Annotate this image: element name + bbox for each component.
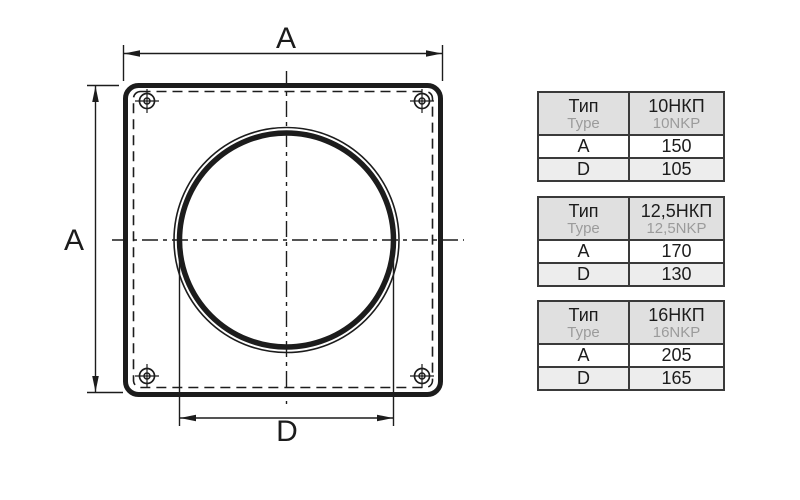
type-header-cell: 10НКП 10NKP	[629, 92, 724, 135]
param-header-cell: Тип Type	[538, 301, 629, 344]
value-cell: 170	[629, 240, 724, 263]
technical-drawing: A A D	[0, 0, 530, 500]
type-header-cell: 16НКП 16NKP	[629, 301, 724, 344]
param-cell: D	[538, 263, 629, 286]
type-label-ru: 16НКП	[630, 305, 723, 325]
dimension-label-a-left: A	[64, 224, 84, 257]
type-label-en: 12,5NKP	[630, 221, 723, 237]
table-row: A 170	[538, 240, 724, 263]
type-label-ru: 12,5НКП	[630, 201, 723, 221]
table-row: D 165	[538, 367, 724, 390]
param-label-ru: Тип	[539, 96, 628, 116]
param-header-cell: Тип Type	[538, 197, 629, 240]
type-header-cell: 12,5НКП 12,5NKP	[629, 197, 724, 240]
param-label-en: Type	[539, 221, 628, 237]
table-header-row: Тип Type 12,5НКП 12,5NKP	[538, 197, 724, 240]
param-label-ru: Тип	[539, 201, 628, 221]
value-cell: 130	[629, 263, 724, 286]
table-header-row: Тип Type 10НКП 10NKP	[538, 92, 724, 135]
param-label-en: Type	[539, 325, 628, 341]
value-cell: 105	[629, 158, 724, 181]
flange-drawing-page: A A D Тип Type 10НКП 10NK	[0, 0, 800, 500]
param-cell: D	[538, 367, 629, 390]
param-label-en: Type	[539, 116, 628, 132]
table-row: D 105	[538, 158, 724, 181]
value-cell: 205	[629, 344, 724, 367]
dimension-label-d-bottom: D	[276, 415, 298, 448]
param-cell: D	[538, 158, 629, 181]
dimension-height-a	[87, 86, 123, 393]
dimension-label-a-top: A	[276, 22, 296, 55]
param-cell: A	[538, 135, 629, 158]
table-row: D 130	[538, 263, 724, 286]
type-label-en: 10NKP	[630, 116, 723, 132]
table-row: A 205	[538, 344, 724, 367]
param-cell: A	[538, 344, 629, 367]
param-header-cell: Тип Type	[538, 92, 629, 135]
type-label-ru: 10НКП	[630, 96, 723, 116]
value-cell: 150	[629, 135, 724, 158]
spec-table-12-5nkp: Тип Type 12,5НКП 12,5NKP A 170 D 130	[537, 196, 725, 287]
arrowhead-up-icon	[92, 86, 99, 102]
spec-table-10nkp: Тип Type 10НКП 10NKP A 150 D 105	[537, 91, 725, 182]
arrowhead-right-icon	[426, 50, 442, 57]
param-label-ru: Тип	[539, 305, 628, 325]
param-cell: A	[538, 240, 629, 263]
arrowhead-right-icon	[377, 415, 393, 422]
table-header-row: Тип Type 16НКП 16NKP	[538, 301, 724, 344]
table-row: A 150	[538, 135, 724, 158]
spec-table-16nkp: Тип Type 16НКП 16NKP A 205 D 165	[537, 300, 725, 391]
arrowhead-down-icon	[92, 376, 99, 392]
type-label-en: 16NKP	[630, 325, 723, 341]
arrowhead-left-icon	[180, 415, 196, 422]
value-cell: 165	[629, 367, 724, 390]
arrowhead-left-icon	[124, 50, 140, 57]
